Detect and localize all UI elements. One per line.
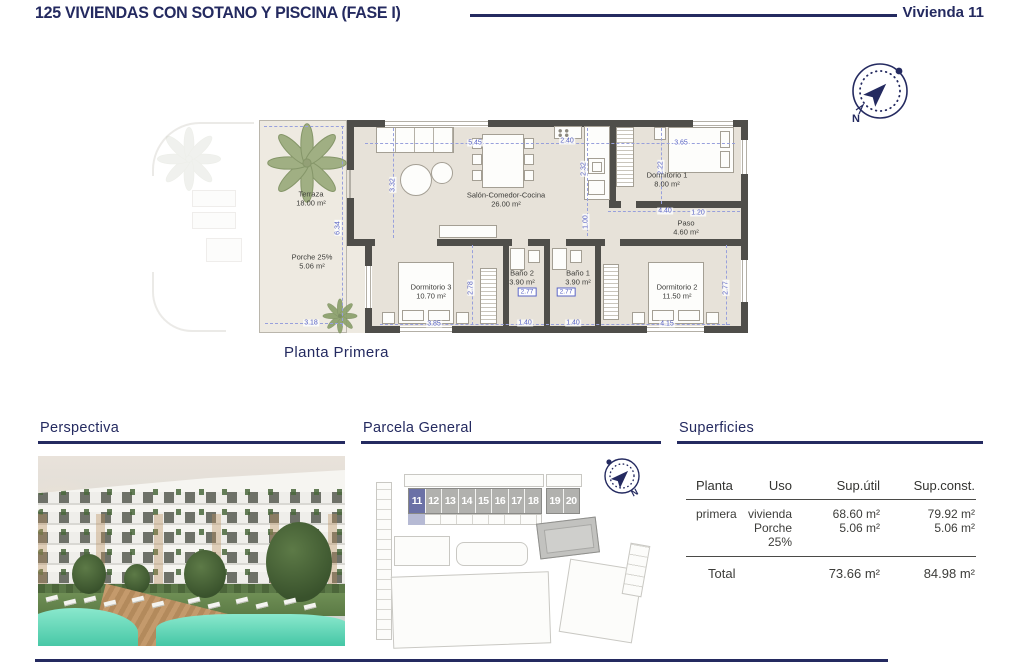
window	[693, 120, 733, 127]
parking-stub	[622, 543, 651, 598]
compass-north-label: N	[852, 113, 860, 125]
col-header-planta: Planta	[678, 478, 742, 493]
unit-cell-20: 20	[564, 489, 580, 513]
plant-icon	[322, 298, 358, 334]
dim-dorm3-height: 2.78	[468, 280, 475, 296]
site-compass-icon: N	[596, 452, 648, 504]
room-label-dorm3: Dormitorio 310.70 m²	[411, 283, 452, 302]
section-superficies: Superficies	[679, 420, 754, 436]
tree	[266, 522, 332, 602]
unit-cell-12: 12	[426, 489, 443, 513]
dim-dorm1-width: 3.65	[673, 140, 689, 147]
terrace-stubs	[408, 514, 542, 525]
dim-bano1-width: 1.40	[565, 320, 581, 327]
room-label-porche: Porche 25%5.06 m²	[292, 253, 333, 272]
underline	[677, 441, 983, 444]
roof-outline	[404, 474, 544, 487]
parking-strip	[376, 482, 392, 640]
dim-bano1-box: 2.77	[557, 288, 576, 297]
unit-strip-19-20: 19 20	[546, 488, 580, 514]
unit-cell-17: 17	[509, 489, 526, 513]
round-table	[400, 164, 432, 196]
wc	[570, 250, 582, 263]
pool-outline	[456, 542, 528, 566]
roof-outline	[546, 474, 582, 487]
room-label-terraza: Terraza18.00 m²	[296, 190, 326, 209]
floor-plan: 5.45 2.40 3.65 3.32 2.32 2.22 1.00 4.40 …	[150, 112, 760, 340]
col-header-sup-util: Sup.útil	[792, 478, 880, 493]
pillow	[402, 310, 424, 321]
total-const: 84.98 m²	[880, 566, 975, 581]
stub-unit-11	[408, 514, 425, 525]
dim-terrace-height: 6.34	[335, 220, 342, 236]
brochure-page: 125 VIVIENDAS CON SOTANO Y PISCINA (FASE…	[0, 0, 1020, 670]
section-parcela: Parcela General	[363, 420, 472, 436]
dim-terrace-width: 3.18	[303, 320, 319, 327]
footer-rule	[35, 659, 888, 662]
table-header-row: Planta Uso Sup.útil Sup.const.	[678, 478, 984, 493]
unit-cell-16: 16	[492, 489, 509, 513]
window	[385, 120, 488, 127]
closet	[480, 268, 497, 324]
plan-caption: Planta Primera	[284, 344, 389, 361]
nightstand	[654, 127, 666, 140]
terrace-door	[349, 170, 351, 198]
dim-bano2-width: 1.40	[517, 320, 533, 327]
nightstand	[632, 312, 645, 324]
pillow	[720, 151, 730, 168]
chair	[524, 154, 534, 165]
unit-cell-11: 11	[409, 489, 426, 513]
sideboard	[439, 225, 497, 238]
dim-dorm3-width: 3.85	[426, 321, 442, 328]
pillow	[428, 310, 450, 321]
closet	[603, 264, 619, 320]
shower	[510, 248, 525, 270]
unit-cell-13: 13	[442, 489, 459, 513]
chair	[472, 170, 482, 181]
shower	[552, 248, 567, 270]
underline	[361, 441, 661, 444]
north-arrow-icon	[863, 78, 892, 107]
unit-title: Vivienda 11	[903, 4, 984, 21]
gray-building	[536, 516, 600, 559]
dim-salon-height: 3.32	[390, 177, 397, 193]
table-row: primera vivienda 68.60 m² 79.92 m²	[678, 507, 984, 521]
site-plan: 11 12 13 14 15 16 17 18 19 20	[368, 452, 662, 666]
tree	[72, 554, 106, 594]
nightstand	[382, 312, 395, 324]
total-label: Total	[678, 566, 742, 581]
chair	[524, 170, 534, 181]
pillow	[720, 131, 730, 148]
unit-cell-19: 19	[547, 489, 564, 513]
block-outline	[394, 536, 450, 566]
col-header-uso: Uso	[742, 478, 792, 493]
pillow	[652, 310, 674, 321]
col-header-sup-const: Sup.const.	[880, 478, 975, 493]
table-row: Porche 25% 5.06 m² 5.06 m²	[678, 521, 984, 549]
compass-dot	[896, 68, 903, 75]
dim-dorm2-width: 4.15	[659, 321, 675, 328]
dim-salon-width: 5.45	[467, 140, 483, 147]
room-label-bano2: Baño 23.90 m²	[509, 269, 534, 288]
compass-dot	[606, 459, 611, 464]
room-label-salon: Salón-Comedor-Cocina26.00 m²	[467, 191, 545, 210]
tree	[184, 550, 226, 598]
dim-paso-width: 4.40	[657, 208, 673, 215]
window	[741, 260, 748, 302]
surfaces-table: Planta Uso Sup.útil Sup.const. primera v…	[678, 452, 984, 581]
unit-cell-15: 15	[476, 489, 493, 513]
unit-cell-18: 18	[525, 489, 541, 513]
neighbour-unit-faded	[150, 120, 255, 333]
north-arrow-icon	[611, 466, 633, 488]
round-table	[431, 162, 453, 184]
perspective-render	[38, 456, 345, 646]
dim-kitchen-low: 1.00	[583, 214, 590, 230]
room-label-dorm2: Dormitorio 211.50 m²	[657, 283, 698, 302]
underline	[38, 441, 345, 444]
window	[365, 266, 372, 308]
wc	[528, 250, 540, 263]
window	[741, 140, 748, 174]
appliance	[588, 180, 605, 195]
dim-kitchen-height: 2.32	[581, 161, 588, 177]
dim-kitchen-width: 2.40	[559, 138, 575, 145]
nightstand	[456, 312, 469, 324]
pillow	[678, 310, 700, 321]
dim-dorm2-height: 2.77	[723, 280, 730, 296]
window	[647, 326, 704, 333]
pool	[156, 614, 345, 646]
palm-faded-icon	[156, 126, 222, 192]
nightstand	[706, 312, 719, 324]
unit-cell-14: 14	[459, 489, 476, 513]
unit-strip-11-18: 11 12 13 14 15 16 17 18	[408, 488, 542, 514]
room-label-dorm1: Dormitorio 18.00 m²	[647, 171, 688, 190]
room-label-bano1: Baño 13.90 m²	[565, 269, 590, 288]
compass-icon: N	[846, 58, 914, 126]
header-rule	[470, 14, 897, 17]
site-compass-north-label: N	[629, 487, 639, 499]
chair	[472, 154, 482, 165]
total-util: 73.66 m²	[792, 566, 880, 581]
table-total-row: Total 73.66 m² 84.98 m²	[678, 566, 984, 581]
page-title: 125 VIVIENDAS CON SOTANO Y PISCINA (FASE…	[35, 3, 401, 23]
closet	[616, 127, 634, 187]
block-outline	[391, 571, 551, 648]
room-label-paso: Paso4.60 m²	[673, 219, 698, 238]
sofa	[376, 127, 454, 153]
dim-paso-width2: 1.20	[690, 210, 706, 217]
section-perspectiva: Perspectiva	[40, 420, 119, 436]
dim-bano2-box: 2.77	[518, 288, 537, 297]
